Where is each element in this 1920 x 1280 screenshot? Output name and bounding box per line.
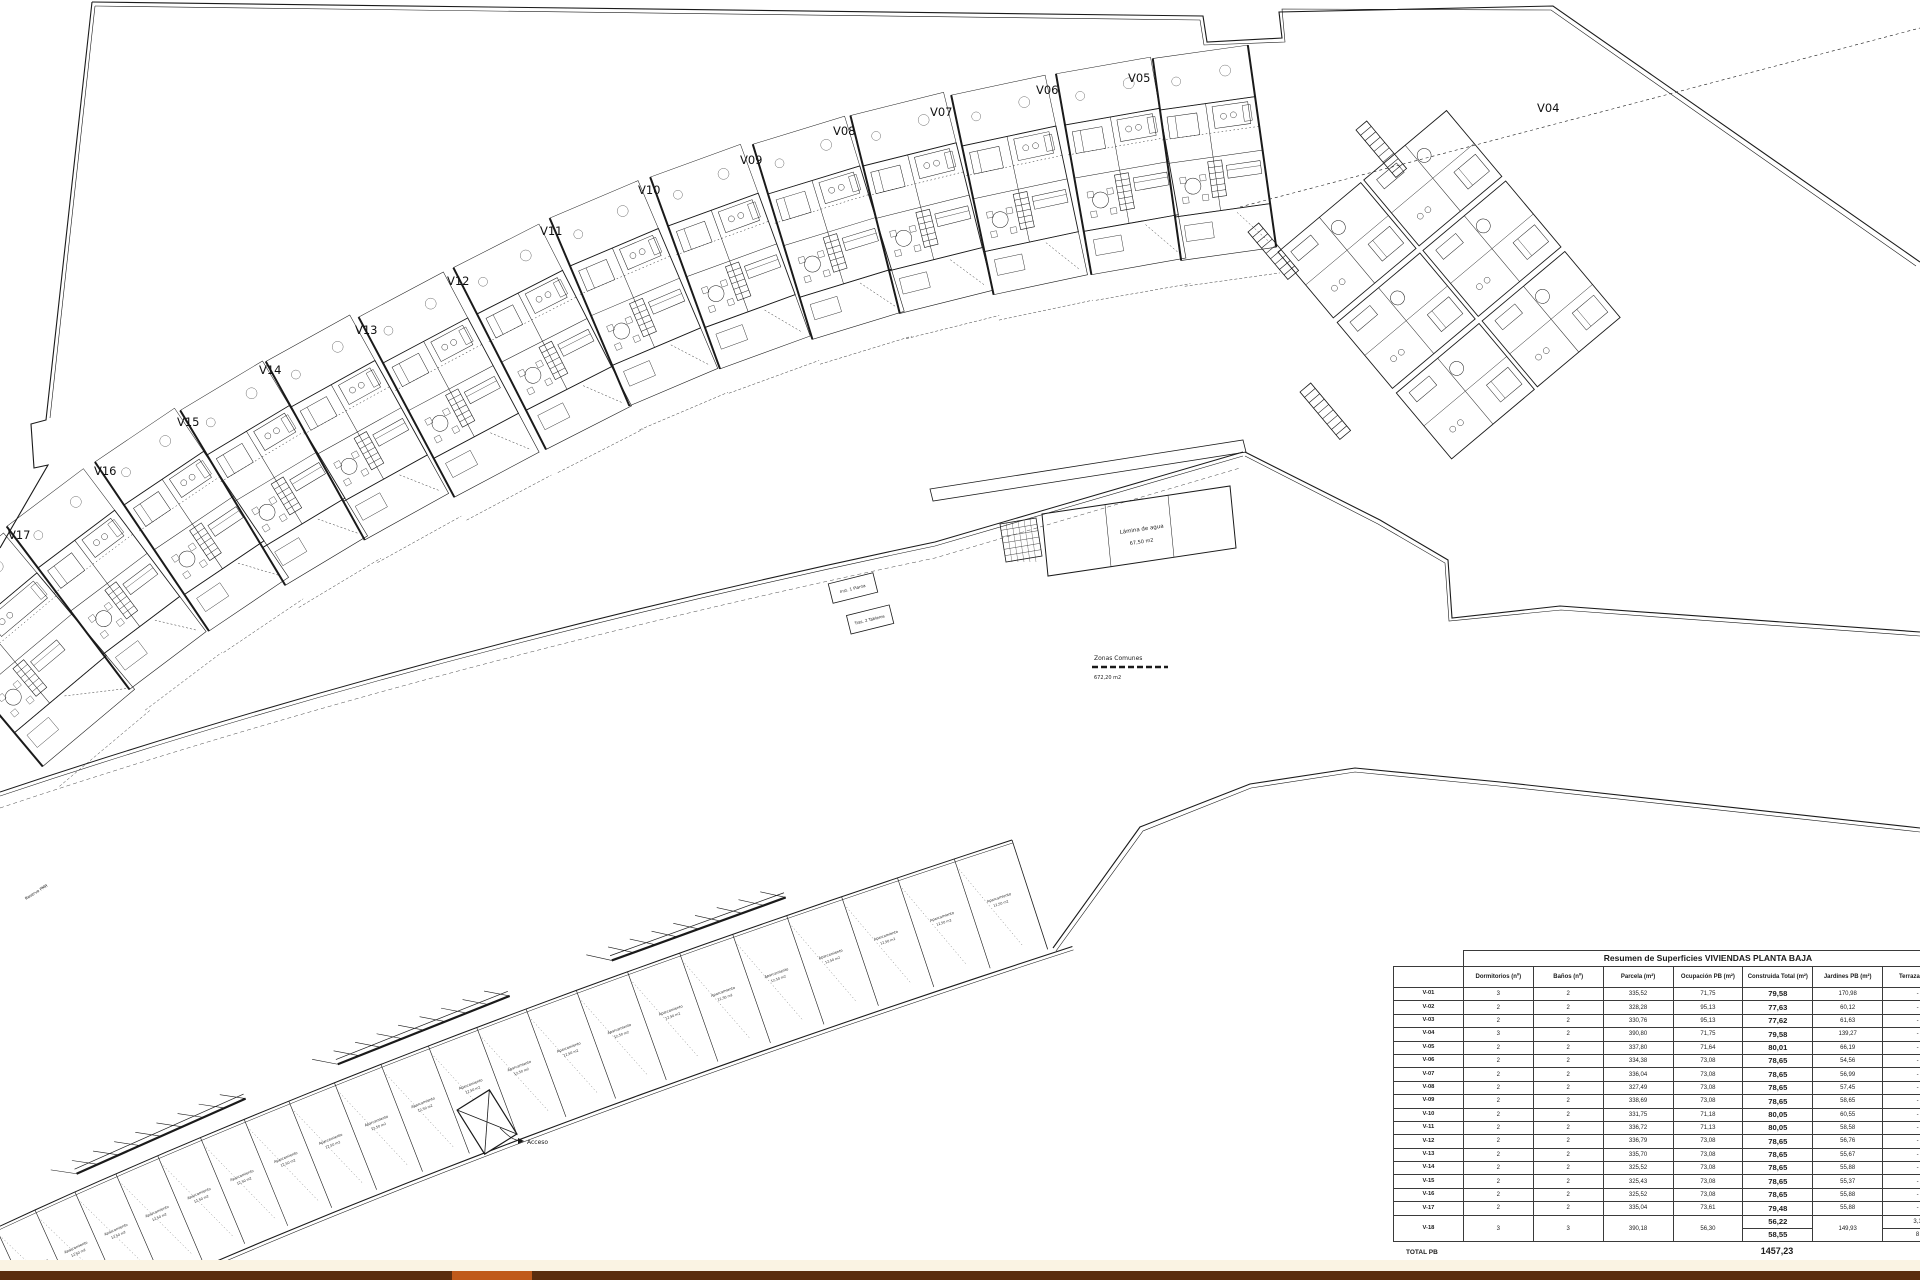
bath-fixture xyxy=(1022,144,1029,151)
table-row: V-0722336,0473,0878,6556,99- xyxy=(1394,1068,1920,1081)
bath-fixture xyxy=(737,212,745,220)
table-cell: 2 xyxy=(1533,1148,1603,1161)
table-cell: 2 xyxy=(1463,1188,1533,1201)
site-boundary xyxy=(1056,772,1920,951)
bath-fixture xyxy=(450,338,458,346)
table-cell: 325,43 xyxy=(1603,1175,1673,1188)
parking-stall: Aparcamiento12,50 m2 xyxy=(628,972,699,1080)
table-cell: 2 xyxy=(1533,1162,1603,1175)
site-boundary xyxy=(1245,456,1920,636)
table-row: V-1222336,7973,0878,6556,76- xyxy=(1394,1135,1920,1148)
table xyxy=(1533,287,1553,307)
table-cell: 390,80 xyxy=(1603,1028,1673,1041)
garden-plant xyxy=(616,204,630,218)
housing-unit xyxy=(452,223,646,473)
table-cell: V-15 xyxy=(1394,1175,1464,1188)
bath-fixture xyxy=(1338,278,1346,286)
table xyxy=(93,607,115,629)
parking-stall: Aparcamiento12,50 m2 xyxy=(842,897,911,1006)
bath-fixture xyxy=(1135,124,1142,131)
table-cell: - xyxy=(1883,1202,1920,1215)
table-cell: - xyxy=(1883,1188,1920,1201)
table-cell: 2 xyxy=(1463,1054,1533,1067)
parking-stall xyxy=(1012,840,1048,949)
table-cell: 335,52 xyxy=(1603,988,1673,1001)
bath-fixture xyxy=(728,215,736,223)
table-cell: 336,79 xyxy=(1603,1135,1673,1148)
table-row: V-1122336,7271,1380,0558,58- xyxy=(1394,1121,1920,1134)
table-cell: 335,70 xyxy=(1603,1148,1673,1161)
table-cell: V-12 xyxy=(1394,1135,1464,1148)
table-total-row: TOTAL PB 1457,23 xyxy=(1400,1246,1920,1260)
table-header: Parcela (m²) xyxy=(1603,967,1673,988)
table-header: Terrazas (m²) xyxy=(1883,967,1920,988)
table-cell: 170,98 xyxy=(1813,988,1883,1001)
table-row: V-1622325,5273,0878,6555,88- xyxy=(1394,1188,1920,1201)
bath-fixture xyxy=(837,184,844,191)
garden-plant xyxy=(382,325,394,337)
garden-plant xyxy=(1075,91,1085,101)
table-cell: 327,49 xyxy=(1603,1081,1673,1094)
garden-plant xyxy=(68,494,83,509)
plan-text: 67,50 m2 xyxy=(1129,538,1154,547)
table-row: V-1322335,7073,0878,6555,67- xyxy=(1394,1148,1920,1161)
table-cell: 390,18 xyxy=(1603,1215,1673,1242)
table-cell: 55,88 xyxy=(1813,1202,1883,1215)
table-cell: 80,05 xyxy=(1743,1121,1813,1134)
unit-label: V08 xyxy=(833,124,856,138)
table-header: Ocupación PB (m²) xyxy=(1673,967,1743,988)
table-cell: 139,27 xyxy=(1813,1028,1883,1041)
table-cell: 73,08 xyxy=(1673,1135,1743,1148)
housing-unit xyxy=(179,360,383,609)
garden-plant xyxy=(672,189,684,201)
housing-unit xyxy=(949,75,1095,321)
table-cell: V-10 xyxy=(1394,1108,1464,1121)
table-cell: 3 xyxy=(1463,988,1533,1001)
parking-stall: Aparcamiento12,50 m2 xyxy=(244,1119,319,1225)
table-cell: 58,65 xyxy=(1813,1095,1883,1108)
table-row: V-0222328,2895,1377,6360,12- xyxy=(1394,1001,1920,1014)
table xyxy=(1328,218,1348,238)
table-cell: 338,69 xyxy=(1603,1095,1673,1108)
table-cell: 77,62 xyxy=(1743,1014,1813,1027)
bath-fixture xyxy=(933,159,940,166)
housing-unit xyxy=(5,467,223,711)
table-cell: 3,1 xyxy=(1883,1215,1920,1228)
bath-fixture xyxy=(1475,282,1483,290)
table-cell: 56,30 xyxy=(1673,1215,1743,1242)
table-cell: 2 xyxy=(1463,1001,1533,1014)
table-cell: 2 xyxy=(1533,1202,1603,1215)
table-cell: V-14 xyxy=(1394,1162,1464,1175)
stair-hatch xyxy=(1356,121,1407,177)
bath-fixture xyxy=(1483,276,1491,284)
unit-label: V17 xyxy=(8,528,31,542)
table-cell: 78,65 xyxy=(1743,1148,1813,1161)
table-cell: - xyxy=(1883,1068,1920,1081)
street-edge xyxy=(0,452,1243,792)
parking-street-edge xyxy=(0,843,1013,1256)
bath-fixture xyxy=(180,479,188,487)
site-boundary xyxy=(0,2,92,548)
parking-street-edge xyxy=(0,840,1012,1253)
garden-plant xyxy=(205,416,217,428)
table-cell: 58,55 xyxy=(1743,1229,1813,1242)
cluster-unit xyxy=(1482,252,1620,387)
bath-fixture xyxy=(188,473,196,481)
table-cell: 79,58 xyxy=(1743,1028,1813,1041)
table-cell: 77,63 xyxy=(1743,1001,1813,1014)
unit-label: V16 xyxy=(94,464,117,478)
site-boundary xyxy=(0,947,1072,1280)
housing-unit xyxy=(548,180,730,431)
table-cell: 2 xyxy=(1533,1068,1603,1081)
unit-label: V11 xyxy=(540,224,563,238)
table xyxy=(1447,359,1467,379)
bath-fixture xyxy=(1125,126,1132,133)
table-cell: - xyxy=(1883,1121,1920,1134)
plan-text: Tras. 2 Tableros xyxy=(853,613,885,626)
table xyxy=(1184,177,1202,195)
unit-label: V05 xyxy=(1128,71,1151,85)
table xyxy=(429,412,451,434)
table-cell: 336,04 xyxy=(1603,1068,1673,1081)
table-row: V-0132335,5271,7579,58170,98- xyxy=(1394,988,1920,1001)
table xyxy=(802,254,822,274)
garden-plant xyxy=(477,276,489,288)
table-cell: 73,08 xyxy=(1673,1095,1743,1108)
bath-fixture xyxy=(441,343,449,351)
table-cell: 56,22 xyxy=(1743,1215,1813,1228)
table-cell: 336,72 xyxy=(1603,1121,1673,1134)
bath-fixture xyxy=(1456,418,1464,426)
unit-label: V13 xyxy=(355,323,378,337)
bath-fixture xyxy=(6,611,14,619)
table-cell: 2 xyxy=(1463,1108,1533,1121)
garden-plant xyxy=(0,559,5,574)
table-cell: 335,04 xyxy=(1603,1202,1673,1215)
guide-dashed-line xyxy=(1240,28,1920,207)
table-cell: 78,65 xyxy=(1743,1068,1813,1081)
garden-plant xyxy=(158,433,173,448)
table-cell: 56,76 xyxy=(1813,1135,1883,1148)
parking-stall: Aparcamiento12,50 m2 xyxy=(954,859,1023,968)
bath-fixture xyxy=(1220,113,1227,120)
table-cell: V-07 xyxy=(1394,1068,1464,1081)
table-cell: - xyxy=(1883,1081,1920,1094)
table-cell: - xyxy=(1883,1041,1920,1054)
garden-plant xyxy=(1219,64,1231,76)
table-cell: 78,65 xyxy=(1743,1135,1813,1148)
bath-fixture xyxy=(1424,206,1432,214)
garden-plant xyxy=(917,113,930,126)
table-cell: - xyxy=(1883,1001,1920,1014)
table-row: V-1422325,5273,0878,6555,88- xyxy=(1394,1162,1920,1175)
bath-fixture xyxy=(638,248,646,256)
table xyxy=(1414,146,1434,166)
table-cell: 60,55 xyxy=(1813,1108,1883,1121)
table-cell: 55,37 xyxy=(1813,1175,1883,1188)
table-cell: 2 xyxy=(1463,1068,1533,1081)
table-cell: 2 xyxy=(1463,1135,1533,1148)
note-boxes: Inst. 1 PlantaTras. 2 Tableros xyxy=(828,573,894,634)
table-cell: V-01 xyxy=(1394,988,1464,1001)
bath-fixture xyxy=(264,432,272,440)
parking-stall: Aparcamiento12,50 m2 xyxy=(680,953,750,1061)
table-cell: V-16 xyxy=(1394,1188,1464,1201)
table-row: V-0432390,8071,7579,58139,27- xyxy=(1394,1028,1920,1041)
parking-stall: Aparcamiento12,50 m2 xyxy=(200,1138,275,1244)
table-cell: 95,13 xyxy=(1673,1001,1743,1014)
garden-plant xyxy=(290,368,302,380)
garden-plant xyxy=(120,466,132,478)
cluster-unit xyxy=(1278,183,1416,318)
site-plan-sheet: Lámina de agua67,50 m2Zonas Comunes672,2… xyxy=(0,0,1920,1280)
unit-label: V06 xyxy=(1036,83,1059,97)
table-cell: - xyxy=(1883,1014,1920,1027)
housing-unit xyxy=(0,532,153,788)
street-dashed xyxy=(0,468,1240,808)
bath-fixture xyxy=(1032,142,1039,149)
garden-plant xyxy=(774,158,785,169)
areas-table: Resumen de Superficies VIVIENDAS PLANTA … xyxy=(1393,950,1920,1242)
bath-fixture xyxy=(0,617,6,625)
housing-unit xyxy=(648,144,821,394)
table-cell: 71,13 xyxy=(1673,1121,1743,1134)
table-cell: 73,08 xyxy=(1673,1148,1743,1161)
table-cell: 80,05 xyxy=(1743,1108,1813,1121)
garden-plant xyxy=(971,111,982,122)
table-cell: 2 xyxy=(1533,1014,1603,1027)
table-cell: 328,28 xyxy=(1603,1001,1673,1014)
table-row: V-0822327,4973,0878,6557,45- xyxy=(1394,1081,1920,1094)
table-row: V-0322330,7695,1377,6261,63- xyxy=(1394,1014,1920,1027)
table-row: V-1722335,0473,6179,4855,88- xyxy=(1394,1202,1920,1215)
table-cell: 55,67 xyxy=(1813,1148,1883,1161)
table-cell: 78,65 xyxy=(1743,1054,1813,1067)
bath-fixture xyxy=(100,532,108,540)
plan-text: Zonas Comunes xyxy=(1094,655,1142,662)
table-cell: 325,52 xyxy=(1603,1188,1673,1201)
table-cell: 73,08 xyxy=(1673,1068,1743,1081)
table-cell: 78,65 xyxy=(1743,1188,1813,1201)
unit-label: V10 xyxy=(638,183,661,197)
table-cell: 79,48 xyxy=(1743,1202,1813,1215)
table-cell: 2 xyxy=(1533,1095,1603,1108)
housing-unit xyxy=(1151,45,1282,287)
bath-fixture xyxy=(629,252,637,260)
total-label: TOTAL PB xyxy=(1406,1249,1438,1256)
table-cell: 66,19 xyxy=(1813,1041,1883,1054)
parking-stall: Aparcamiento12,50 m2 xyxy=(381,1064,454,1171)
unit-label: V14 xyxy=(259,363,282,377)
table-cell: 2 xyxy=(1463,1202,1533,1215)
table-row: V-1022331,7571,1880,0560,55- xyxy=(1394,1108,1920,1121)
garden-plant xyxy=(572,228,584,240)
bath-fixture xyxy=(272,427,280,435)
table-cell: 78,65 xyxy=(1743,1162,1813,1175)
parking-stall: Aparcamiento12,50 m2 xyxy=(334,1083,408,1190)
table-cell: - xyxy=(1883,1162,1920,1175)
table-cell: 73,08 xyxy=(1673,1188,1743,1201)
housing-unit xyxy=(264,314,463,564)
table-header: Construida Total (m²) xyxy=(1743,967,1813,988)
parking-stall: Aparcamiento12,50 m2 xyxy=(526,1009,598,1117)
table-cell: 2 xyxy=(1533,1054,1603,1067)
bath-fixture xyxy=(1330,284,1338,292)
table-cell: 80,01 xyxy=(1743,1041,1813,1054)
table-cell: V-02 xyxy=(1394,1001,1464,1014)
reserva-label: Reserva PMR xyxy=(24,883,49,901)
table-cell: 3 xyxy=(1533,1215,1603,1242)
table-header xyxy=(1394,967,1464,988)
table-cell: 331,75 xyxy=(1603,1108,1673,1121)
table-cell: - xyxy=(1883,988,1920,1001)
table-cell: - xyxy=(1883,1108,1920,1121)
table-cell: 61,63 xyxy=(1813,1014,1883,1027)
table-cell: 2 xyxy=(1533,1001,1603,1014)
table-cell xyxy=(1394,951,1464,967)
table-cell: V-09 xyxy=(1394,1095,1464,1108)
housing-unit xyxy=(1054,57,1192,301)
table-cell: V-05 xyxy=(1394,1041,1464,1054)
table-cell: 2 xyxy=(1533,1135,1603,1148)
table-cell: 2 xyxy=(1463,1148,1533,1161)
table-row: V-1833390,1856,3056,22149,933,1 xyxy=(1394,1215,1920,1228)
bath-fixture xyxy=(357,381,365,389)
table-cell: V-04 xyxy=(1394,1028,1464,1041)
table-cell: 73,08 xyxy=(1673,1162,1743,1175)
table-row: V-0622334,3873,0878,6554,56- xyxy=(1394,1054,1920,1067)
table-cell: 2 xyxy=(1463,1041,1533,1054)
bath-fixture xyxy=(1534,353,1542,361)
table-cell: 73,08 xyxy=(1673,1081,1743,1094)
parking-stall: Aparcamiento12,50 m2 xyxy=(576,990,647,1098)
cluster-unit xyxy=(1423,181,1561,316)
table xyxy=(176,548,198,570)
table-cell: 2 xyxy=(1533,1188,1603,1201)
table-cell: 57,45 xyxy=(1813,1081,1883,1094)
table-cell: 2 xyxy=(1463,1162,1533,1175)
table-cell: 60,12 xyxy=(1813,1001,1883,1014)
table-cell: 78,65 xyxy=(1743,1081,1813,1094)
garden-plant xyxy=(716,167,730,181)
table-cell: 2 xyxy=(1463,1121,1533,1134)
garden-plant xyxy=(330,339,345,354)
bath-fixture xyxy=(92,538,100,546)
site-boundary xyxy=(95,6,1916,266)
table-cell: - xyxy=(1883,1175,1920,1188)
table-cell: 2 xyxy=(1533,1081,1603,1094)
table-cell: 56,99 xyxy=(1813,1068,1883,1081)
brown-footer-bar xyxy=(0,1271,1920,1280)
table-cell: 71,64 xyxy=(1673,1041,1743,1054)
common-zone-strip xyxy=(930,440,1246,501)
table-cell: 54,56 xyxy=(1813,1054,1883,1067)
bath-fixture xyxy=(544,291,552,299)
site-boundary xyxy=(1245,452,1920,632)
table-header: Dormitorios (nº) xyxy=(1463,967,1533,988)
table xyxy=(1091,191,1110,210)
bath-fixture xyxy=(1416,212,1424,220)
housing-unit xyxy=(848,92,1001,339)
garden-plant xyxy=(819,138,833,152)
table-cell: 325,52 xyxy=(1603,1162,1673,1175)
plan-text: Lámina de agua xyxy=(1119,523,1164,536)
cluster-unit xyxy=(1337,253,1475,388)
unit-label: V15 xyxy=(177,415,200,429)
cluster-unit xyxy=(1364,111,1502,246)
table-cell: 3 xyxy=(1463,1028,1533,1041)
table-cell: V-17 xyxy=(1394,1202,1464,1215)
bath-fixture xyxy=(348,386,356,394)
table-cell: V-06 xyxy=(1394,1054,1464,1067)
table-cell: V-08 xyxy=(1394,1081,1464,1094)
table-cell: 2 xyxy=(1533,1041,1603,1054)
water-feature: Lámina de agua67,50 m2 xyxy=(1042,486,1236,576)
site-boundary xyxy=(1053,768,1920,948)
table xyxy=(894,229,913,248)
garden-plant xyxy=(871,130,882,141)
table-cell: V-13 xyxy=(1394,1148,1464,1161)
garden-plant xyxy=(1018,96,1031,109)
parking-stall: Aparcamiento12,50 m2 xyxy=(289,1101,363,1208)
table-cell: 334,38 xyxy=(1603,1054,1673,1067)
garden-plant xyxy=(1171,76,1181,86)
bath-fixture xyxy=(828,186,835,193)
cream-band xyxy=(0,1260,1920,1271)
table-cell: 71,75 xyxy=(1673,1028,1743,1041)
table-cell: 2 xyxy=(1463,1014,1533,1027)
table-cell: - xyxy=(1883,1028,1920,1041)
parking-stall: Aparcamiento12,50 m2 xyxy=(158,1156,234,1262)
table-cell: 73,08 xyxy=(1673,1054,1743,1067)
table-cell: 2 xyxy=(1533,1108,1603,1121)
hatched-plant-room xyxy=(1000,518,1042,562)
table-cell: 2 xyxy=(1463,1081,1533,1094)
access-marker: Acceso xyxy=(457,1090,548,1154)
bath-fixture xyxy=(1397,348,1405,356)
summary-table: Resumen de Superficies VIVIENDAS PLANTA … xyxy=(1393,950,1920,1242)
table xyxy=(706,283,727,304)
table-cell: 8 xyxy=(1883,1229,1920,1242)
unit-label: V07 xyxy=(930,105,953,119)
table xyxy=(338,455,360,477)
table-cell: V-11 xyxy=(1394,1121,1464,1134)
parking-stall: Aparcamiento12,50 m2 xyxy=(897,878,966,987)
bath-fixture xyxy=(535,295,543,303)
table-cell: 78,65 xyxy=(1743,1095,1813,1108)
table-cell: 55,88 xyxy=(1813,1188,1883,1201)
table xyxy=(1473,216,1493,236)
unit-label: V09 xyxy=(740,153,763,167)
site-boundary xyxy=(92,2,1920,262)
garden-plant xyxy=(244,386,259,401)
cluster-unit xyxy=(1396,324,1534,459)
bath-fixture xyxy=(1389,354,1397,362)
table-header: Jardines PB (m²) xyxy=(1813,967,1883,988)
table-cell: 149,93 xyxy=(1813,1215,1883,1242)
garden-plant xyxy=(423,296,438,311)
table-header: Baños (nº) xyxy=(1533,967,1603,988)
plan-text: Inst. 1 Planta xyxy=(839,583,866,594)
stair-hatch xyxy=(1300,383,1351,439)
table-cell: 78,65 xyxy=(1743,1175,1813,1188)
table-cell: 2 xyxy=(1533,1175,1603,1188)
table-cell: - xyxy=(1883,1135,1920,1148)
table-cell: V-03 xyxy=(1394,1014,1464,1027)
